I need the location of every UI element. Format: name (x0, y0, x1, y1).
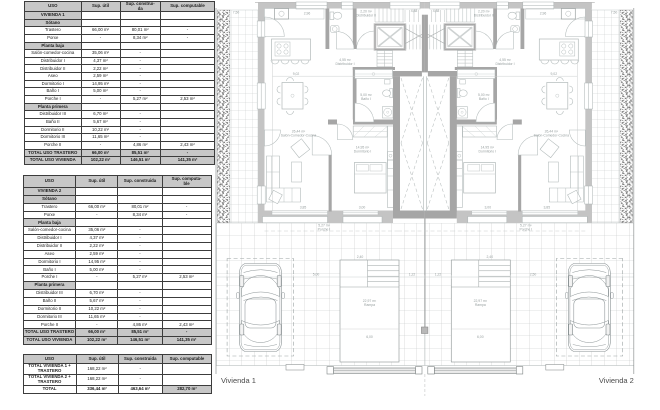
svg-text:Distribuidor I: Distribuidor I (495, 62, 514, 66)
svg-text:Vivienda 1: Vivienda 1 (221, 376, 256, 385)
svg-text:5,00: 5,00 (313, 273, 320, 277)
svg-text:3,85: 3,85 (543, 206, 550, 210)
svg-text:2,40: 2,40 (486, 255, 493, 259)
svg-text:Salón-Comedor-Cocina: Salón-Comedor-Cocina (534, 134, 570, 138)
svg-text:Salón-Comedor-Cocina: Salón-Comedor-Cocina (281, 134, 317, 138)
svg-text:Vivienda 2: Vivienda 2 (599, 376, 634, 385)
svg-text:Rampa: Rampa (475, 303, 486, 307)
svg-text:Baño I: Baño I (361, 97, 371, 101)
svg-text:Distribuidor II: Distribuidor II (356, 14, 376, 18)
svg-text:Baño I: Baño I (479, 97, 489, 101)
svg-text:2,96: 2,96 (540, 12, 547, 16)
svg-text:4,88: 4,88 (433, 9, 440, 13)
svg-text:3,00: 3,00 (359, 206, 366, 210)
svg-text:2,96: 2,96 (304, 12, 311, 16)
svg-text:Distribuidor II: Distribuidor II (474, 14, 494, 18)
svg-text:9,02: 9,02 (550, 72, 557, 76)
svg-text:4,88: 4,88 (411, 9, 418, 13)
svg-text:Porche I: Porche I (519, 228, 532, 232)
svg-text:1,22: 1,22 (435, 273, 442, 277)
svg-text:Distribuidor I: Distribuidor I (335, 62, 354, 66)
svg-text:2,40: 2,40 (357, 255, 364, 259)
svg-text:2,50: 2,50 (530, 273, 537, 277)
svg-text:9,02: 9,02 (293, 72, 300, 76)
svg-text:Dormitorio I: Dormitorio I (354, 150, 372, 154)
svg-text:1,22: 1,22 (409, 273, 416, 277)
svg-text:6,00: 6,00 (366, 335, 373, 339)
svg-text:7,50: 7,50 (233, 11, 240, 15)
svg-text:3,00: 3,00 (484, 206, 491, 210)
svg-text:Porche I: Porche I (318, 228, 331, 232)
svg-text:Dormitorio I: Dormitorio I (479, 150, 497, 154)
svg-text:3,85: 3,85 (300, 206, 307, 210)
svg-text:Rampa: Rampa (364, 303, 375, 307)
svg-text:7,50: 7,50 (611, 11, 618, 15)
svg-text:6,00: 6,00 (477, 335, 484, 339)
